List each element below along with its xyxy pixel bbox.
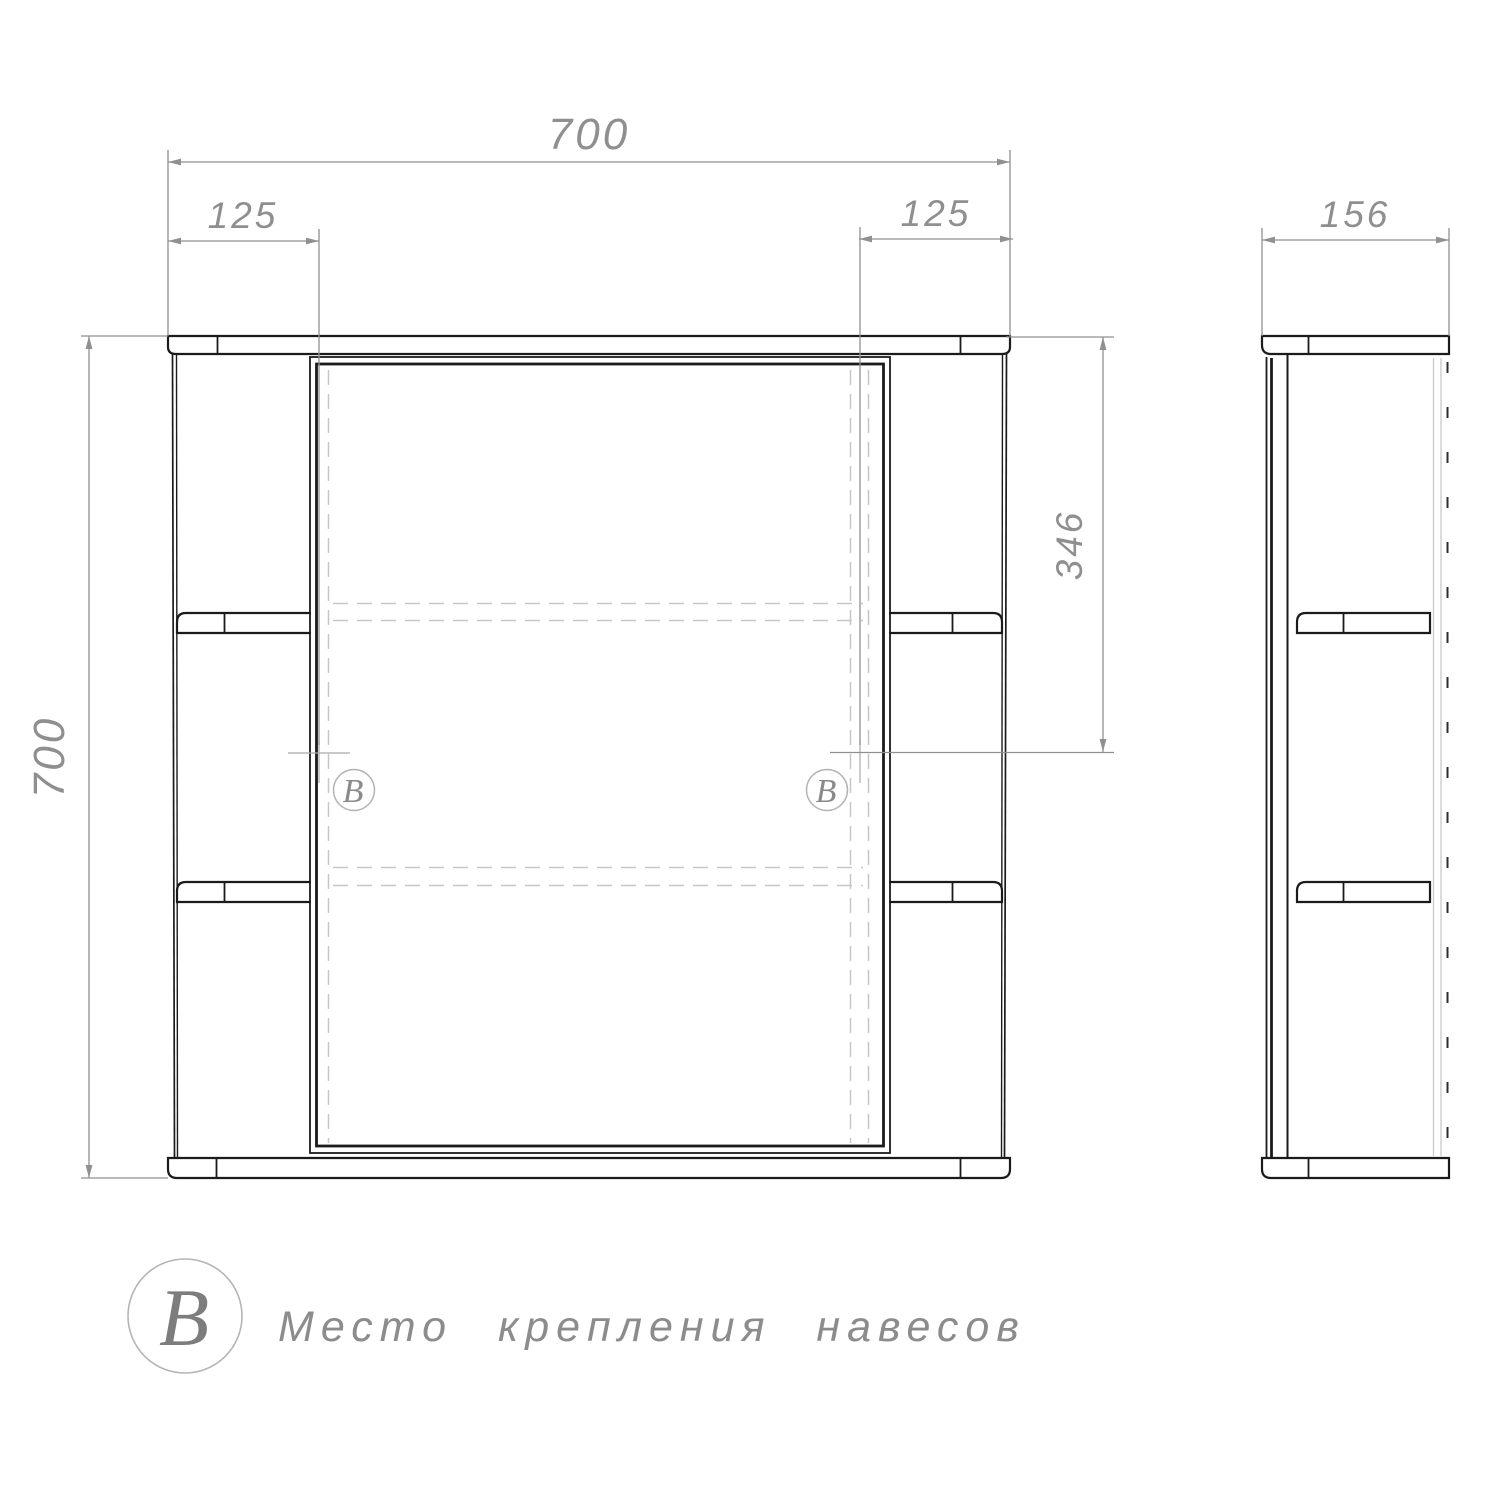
side-bottom-panel xyxy=(1262,1158,1449,1178)
dim-overall-width-value: 700 xyxy=(548,110,630,159)
dim-right-offset-value: 125 xyxy=(901,193,972,234)
front-left-panel-outer-edge xyxy=(173,354,175,1158)
dim-mount-height-arrow-top xyxy=(1100,337,1107,350)
side-view xyxy=(1262,336,1449,1178)
dimension-right-mount-offset: 125 xyxy=(859,193,1013,745)
front-right-panel-inner-edge xyxy=(1002,355,1003,1158)
side-shelf-lower xyxy=(1297,882,1430,902)
dimensions: 700 125 125 156 xyxy=(25,110,1449,1178)
dim-depth-value: 156 xyxy=(1320,194,1391,235)
front-right-panel-outer-edge xyxy=(1005,354,1007,1158)
dim-overall-height-arrow-bottom xyxy=(86,1165,93,1178)
dim-mount-height-value: 346 xyxy=(1049,510,1090,581)
dim-left-offset-arrow-left xyxy=(168,238,181,245)
cabinet-technical-drawing: В В 70 xyxy=(0,0,1500,1500)
dim-left-offset-arrow-right xyxy=(306,238,319,245)
dim-depth-arrow-left xyxy=(1262,237,1275,244)
side-top-panel xyxy=(1262,336,1449,354)
mount-marker-right-letter: В xyxy=(816,773,837,810)
dim-right-offset-arrow-left xyxy=(859,236,872,243)
front-left-shelf-lower xyxy=(177,882,311,902)
technical-drawing-page: В В 70 xyxy=(0,0,1500,1500)
dim-overall-height-value: 700 xyxy=(25,716,74,798)
front-hidden-lines xyxy=(329,370,869,1143)
legend-label: Место крепления навесов xyxy=(278,1303,1026,1351)
mount-marker-left-letter: В xyxy=(343,773,364,810)
dimension-overall-height: 700 xyxy=(25,336,168,1178)
dimension-depth: 156 xyxy=(1262,194,1449,336)
dim-overall-width-arrow-left xyxy=(168,159,181,166)
front-top-panel xyxy=(168,336,1010,354)
front-bottom-panel xyxy=(168,1158,1010,1178)
mirror-door-inner-edge xyxy=(317,364,884,1146)
front-left-shelf-upper xyxy=(177,613,311,633)
mount-marker-left: В xyxy=(334,770,375,811)
dim-left-offset-value: 125 xyxy=(208,195,279,236)
front-left-panel-inner-edge xyxy=(177,355,178,1158)
dim-overall-height-arrow-top xyxy=(86,336,93,349)
front-right-shelf-upper xyxy=(889,613,1002,633)
side-shelf-upper xyxy=(1297,613,1430,633)
dimension-mount-from-top: 346 xyxy=(830,337,1114,753)
legend-marker-letter: В xyxy=(159,1272,209,1363)
mirror-door-outer-edge xyxy=(310,357,890,1153)
dimension-left-mount-offset: 125 xyxy=(168,195,319,745)
mount-crosshairs xyxy=(288,741,860,783)
dim-overall-width-arrow-right xyxy=(997,159,1010,166)
dimension-overall-width: 700 xyxy=(168,110,1010,336)
front-right-shelf-lower xyxy=(889,882,1002,902)
dim-right-offset-arrow-right xyxy=(1000,236,1013,243)
front-view: В В xyxy=(168,336,1010,1178)
dim-mount-height-arrow-bottom xyxy=(1100,739,1107,752)
legend: В Место крепления навесов xyxy=(128,1259,1026,1373)
mount-marker-right: В xyxy=(807,770,848,811)
dim-depth-arrow-right xyxy=(1436,237,1449,244)
